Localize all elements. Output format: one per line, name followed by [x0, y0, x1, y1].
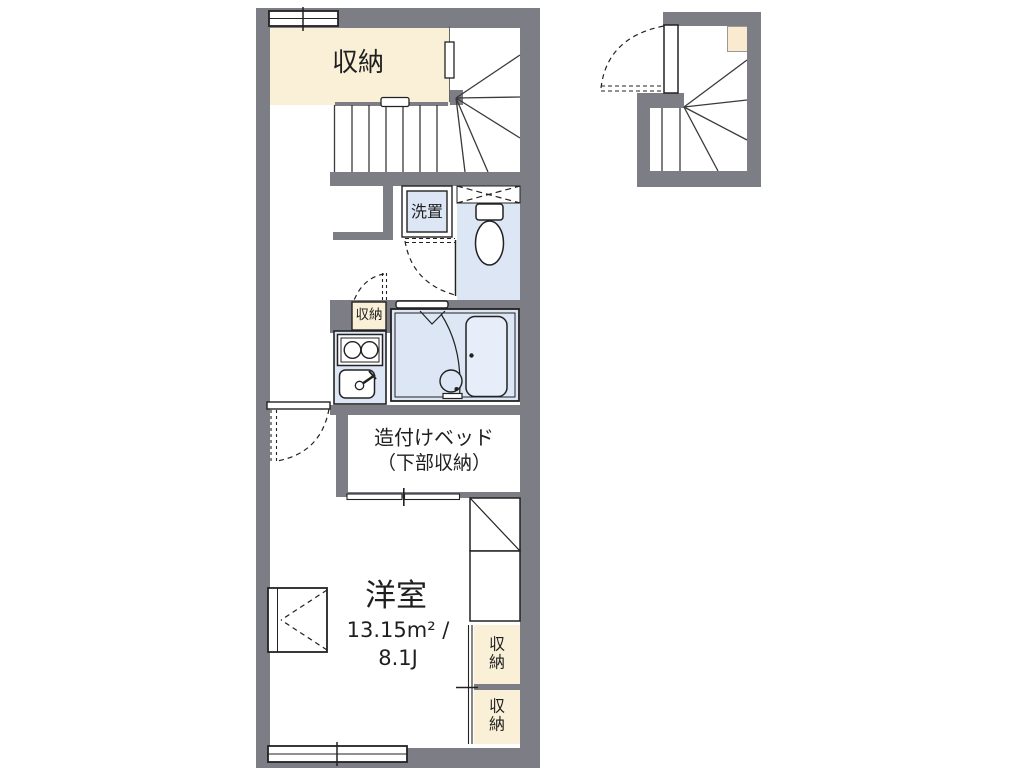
closet-door-icon [353, 273, 387, 303]
stove-icon [338, 335, 383, 366]
bed-label-line1: 造付けベッド [374, 427, 494, 450]
small-plan-door-leaf [664, 25, 678, 93]
bed-sliding-door-icon [347, 488, 460, 506]
sanitary-door-icon [405, 239, 456, 297]
small-plan-fan-stairs [684, 60, 747, 171]
bath-entry-bar [396, 301, 448, 308]
sink-icon [340, 370, 377, 398]
kitchen-unit [334, 331, 386, 404]
closet-top-label: 収納 [332, 49, 384, 79]
bed-label-line2: （下部収納） [377, 453, 491, 475]
room-entry-door-icon [267, 402, 330, 461]
high-window-icon [457, 186, 520, 203]
refrigerator-space [470, 498, 520, 621]
small-plan-treads [662, 108, 680, 171]
storage-right-bottom-label: 収納 [488, 698, 506, 735]
washer-label: 洗置 [411, 203, 443, 221]
storage-sliding-track [456, 625, 478, 744]
small-plan-door-arc [601, 26, 664, 88]
toilet-icon [476, 204, 504, 265]
plan-linework [0, 0, 1017, 772]
closet-small-label: 収納 [356, 308, 383, 324]
window-bottom-icon [268, 742, 407, 766]
floor-plan-canvas: 収納 洗置 収納 造付けベッド （下部収納） 洋室 13.15m² / 8.1J… [0, 0, 1017, 772]
bath-drain-icon [440, 370, 462, 392]
window-top-icon [269, 7, 338, 31]
small-plan-linework [601, 25, 747, 171]
bathroom-unit [391, 301, 519, 401]
storage-right-top-label: 収納 [488, 636, 506, 673]
main-room-area-m2: 13.15m² / [347, 618, 450, 642]
window-left-icon [268, 588, 327, 652]
main-room-area-jo: 8.1J [378, 646, 418, 670]
main-room-name: 洋室 [365, 579, 427, 615]
